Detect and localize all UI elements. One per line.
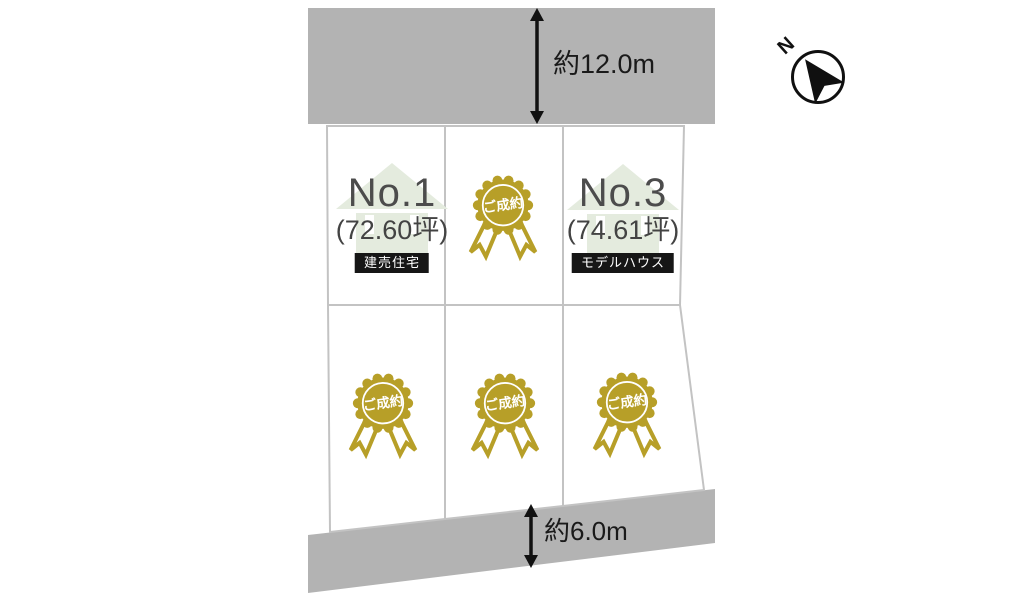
road-top-dimension-label: 約12.0m (553, 51, 655, 78)
sold-rosette-icon (338, 367, 428, 461)
site-plan-drawing (0, 0, 1024, 604)
lot-no1-badge: 建売住宅 (355, 253, 429, 273)
lot-no1-area: (72.60坪) (336, 216, 449, 244)
lot-no3-badge: モデルハウス (572, 253, 674, 273)
lot-no3-area: (74.61坪) (567, 216, 680, 244)
lot-no1-number: No.1 (348, 173, 437, 213)
sold-rosette-icon (460, 367, 550, 461)
site-plan-canvas: ご成約 (0, 0, 1024, 604)
lot-no3-info: No.3 (74.61坪) モデルハウス (567, 173, 680, 273)
lot-no3-number: No.3 (579, 173, 668, 213)
road-bottom-dimension-label: 約6.0m (544, 518, 628, 544)
sold-rosette-icon (582, 366, 672, 460)
sold-rosette-icon (458, 169, 548, 263)
lot-no1-info: No.1 (72.60坪) 建売住宅 (336, 173, 449, 273)
